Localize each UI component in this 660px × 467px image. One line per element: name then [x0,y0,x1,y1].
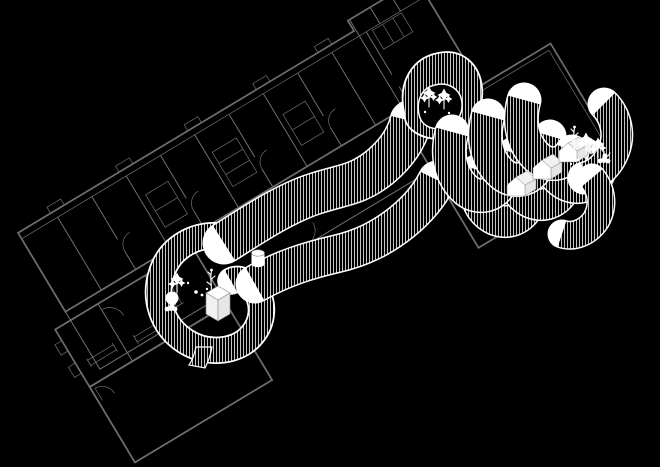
planter-circle [166,292,179,305]
cube-icon [206,286,230,321]
drawing-canvas [0,0,660,467]
axonometric-drawing [0,0,660,467]
cylinder-icon [252,250,265,267]
